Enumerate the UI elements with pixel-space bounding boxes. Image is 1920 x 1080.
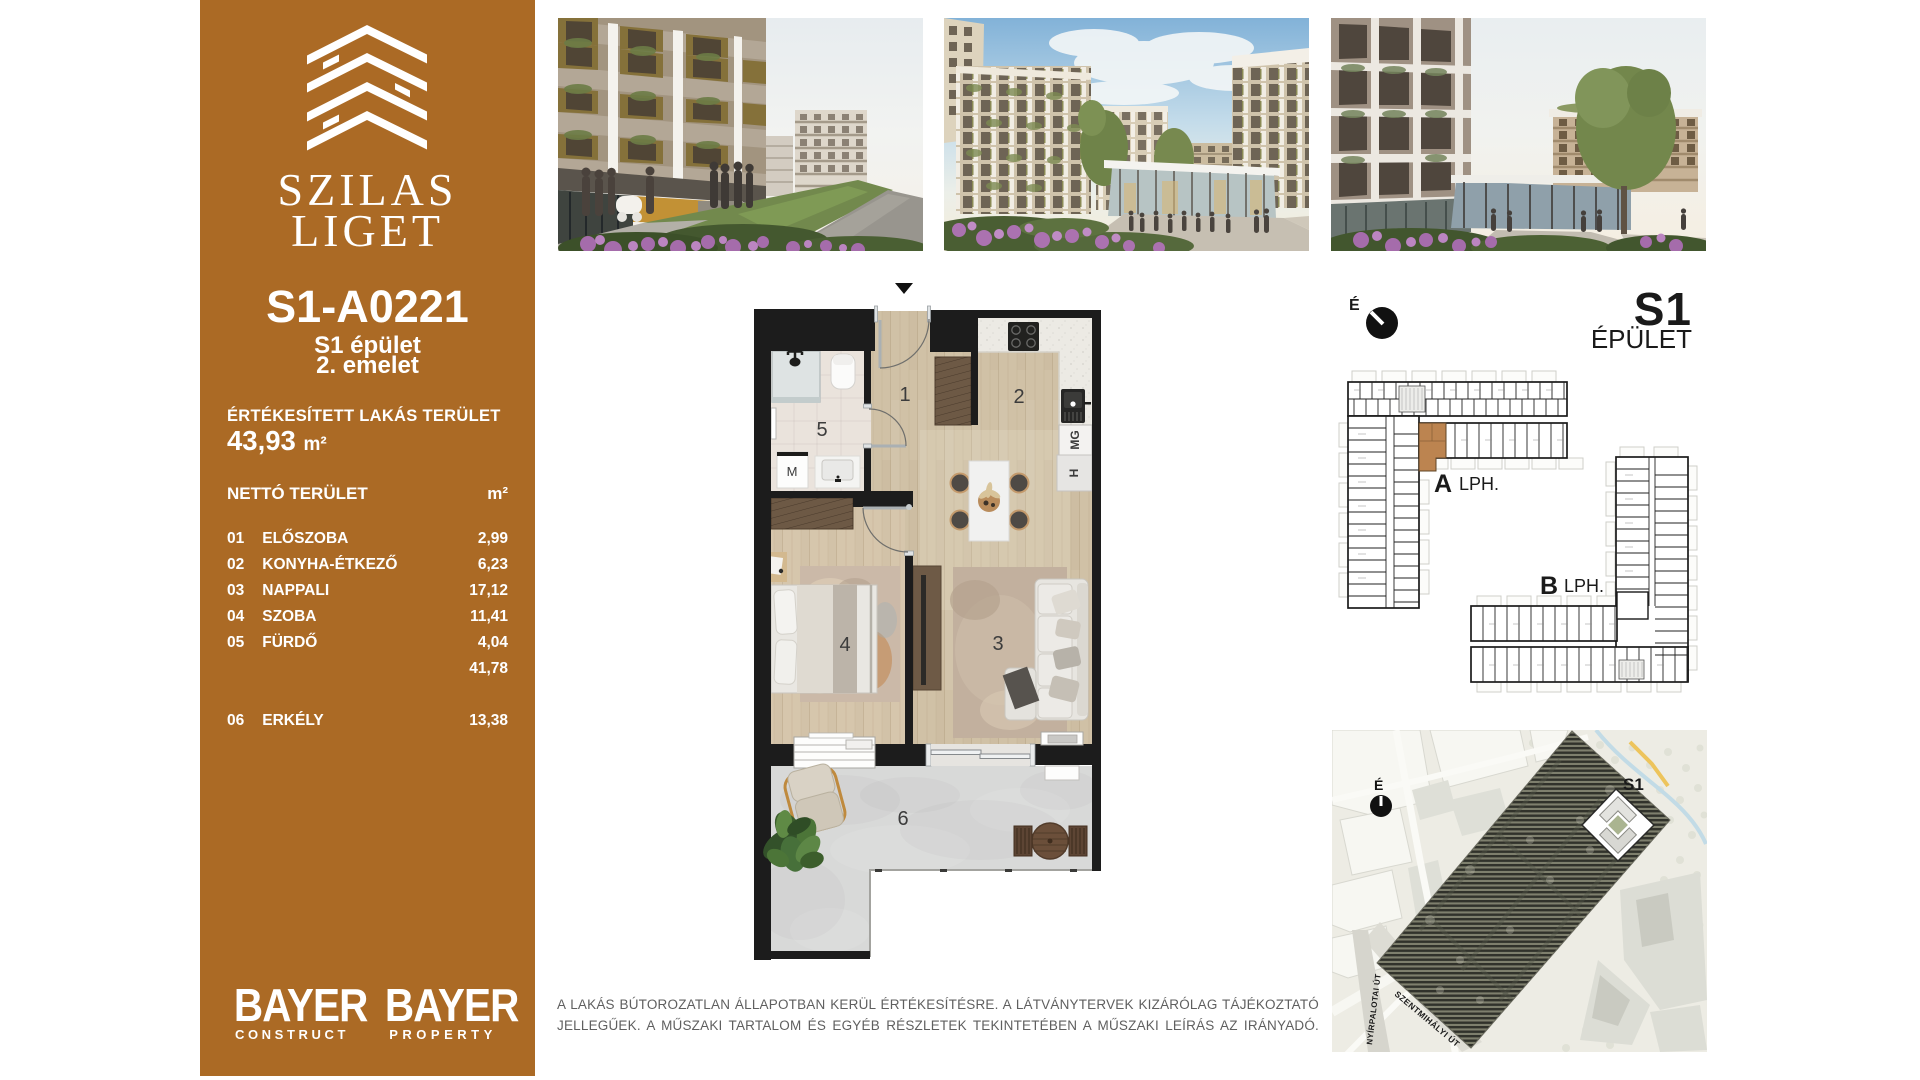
svg-text:M: M xyxy=(787,464,798,479)
svg-text:É: É xyxy=(1374,777,1383,793)
svg-text:LPH.: LPH. xyxy=(1459,474,1499,494)
svg-text:A: A xyxy=(1434,470,1452,498)
svg-text:LPH.: LPH. xyxy=(1564,576,1604,596)
svg-text:S1: S1 xyxy=(1623,775,1644,794)
svg-text:1: 1 xyxy=(899,384,910,406)
svg-text:MG: MG xyxy=(1068,430,1082,449)
svg-text:2: 2 xyxy=(1013,386,1024,408)
svg-text:3: 3 xyxy=(992,633,1003,655)
svg-text:5: 5 xyxy=(816,419,827,441)
svg-text:ÉPÜLET: ÉPÜLET xyxy=(1591,324,1692,354)
svg-text:H: H xyxy=(1067,469,1081,478)
svg-text:4: 4 xyxy=(839,634,850,656)
svg-text:B: B xyxy=(1540,572,1558,600)
svg-text:É: É xyxy=(1349,295,1360,314)
svg-text:6: 6 xyxy=(897,808,908,830)
